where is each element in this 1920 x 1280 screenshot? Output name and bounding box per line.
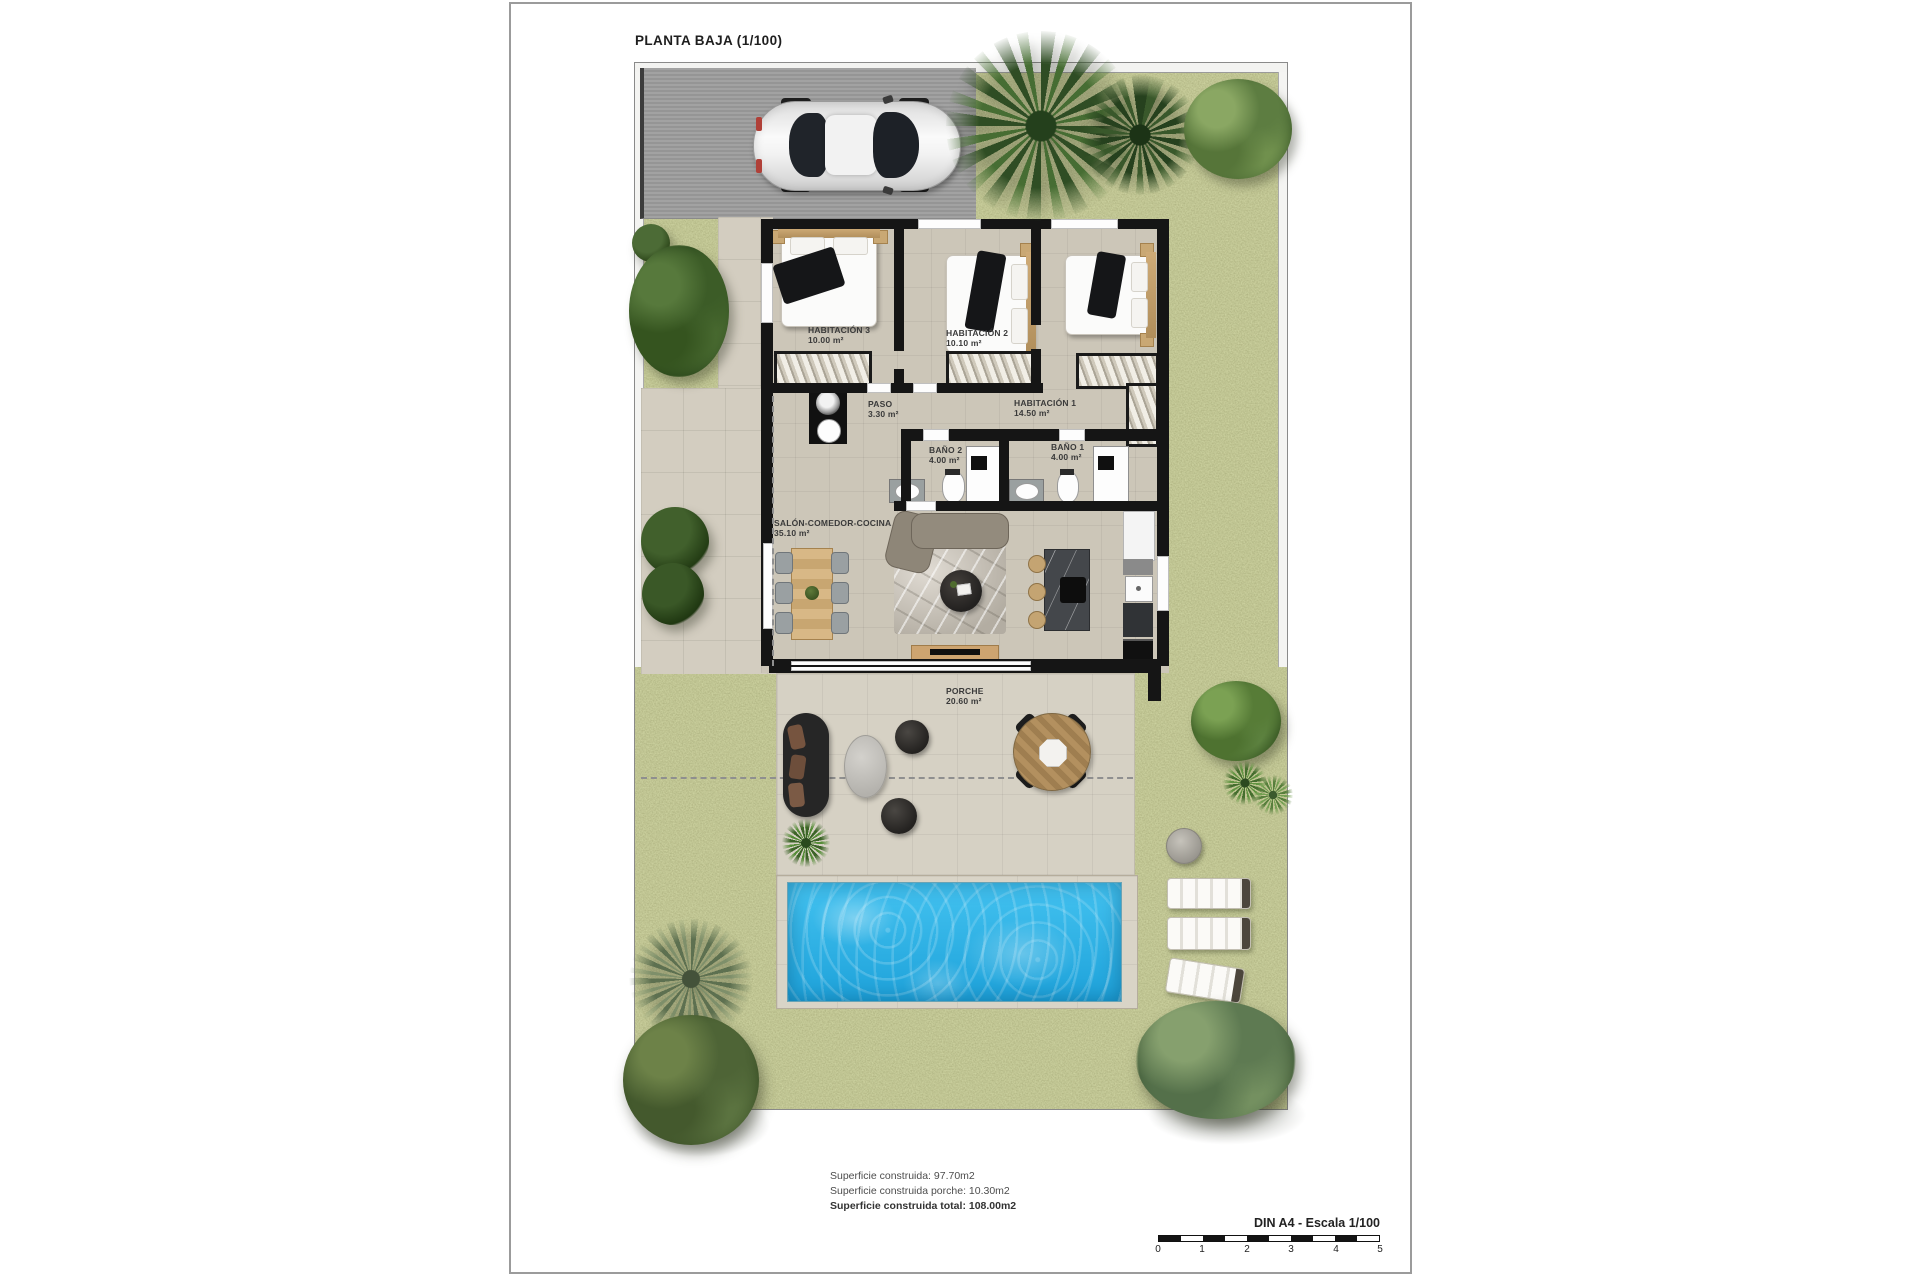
room-name: BAÑO 1 [1051, 442, 1084, 452]
dining-chair [775, 582, 793, 604]
washing-machine [816, 391, 840, 415]
utility-sink [817, 419, 841, 443]
fern-plant [1253, 775, 1293, 815]
room-label-salon: SALÓN-COMEDOR-COCINA 35.10 m² [774, 518, 891, 538]
pouf [895, 720, 929, 754]
summary-total-surface: Superficie construida total: 108.00m2 [830, 1199, 1016, 1214]
room-name: SALÓN-COMEDOR-COCINA [774, 518, 891, 528]
bar-stool [1028, 555, 1046, 573]
shower-tray [1093, 446, 1129, 505]
door-opening [867, 383, 891, 393]
sofa [911, 513, 1009, 549]
tree [1184, 79, 1292, 179]
scale-segment [1225, 1236, 1247, 1241]
pouf [881, 798, 917, 834]
wall-segment [1148, 661, 1161, 701]
dining-chair [831, 612, 849, 634]
scale-tick: 3 [1288, 1244, 1294, 1256]
tv-screen [930, 649, 980, 655]
pillow [833, 237, 869, 255]
room-label-bano-2: BAÑO 2 4.00 m² [929, 445, 962, 465]
scale-segment [1335, 1236, 1357, 1241]
room-name: HABITACIÓN 1 [1014, 398, 1076, 408]
room-area: 14.50 m² [1014, 408, 1076, 418]
room-name: HABITACIÓN 2 [946, 328, 1008, 338]
summary-porch-surface: Superficie construida porche: 10.30m2 [830, 1184, 1016, 1199]
wall-segment [901, 441, 911, 504]
bed-double [1065, 255, 1153, 335]
room-label-habitacion-2: HABITACIÓN 2 10.10 m² [946, 328, 1008, 348]
scale-segment [1291, 1236, 1313, 1241]
floor-plan-canvas: PLANTA BAJA (1/100) [0, 0, 1920, 1280]
toilet [1057, 471, 1079, 503]
car-taillight [756, 117, 762, 131]
scale-segment [1313, 1236, 1335, 1241]
dining-chair [775, 552, 793, 574]
door-opening [1059, 429, 1085, 441]
tree [1136, 1001, 1296, 1119]
sofa-cushion [788, 754, 806, 780]
scale-tick: 5 [1377, 1244, 1383, 1256]
outdoor-sofa [783, 713, 829, 817]
room-area: 4.00 m² [929, 455, 962, 465]
bed-throw [964, 250, 1006, 333]
grass-tuft [782, 819, 830, 867]
kitchen-counter-dark [1123, 603, 1153, 637]
scale-tick: 0 [1155, 1244, 1161, 1256]
bar-stool [1028, 583, 1046, 601]
house [761, 219, 1169, 673]
room-area: 10.10 m² [946, 338, 1008, 348]
bar-stool [1028, 611, 1046, 629]
perimeter-wall-right [1278, 72, 1287, 667]
pillow [1011, 308, 1027, 345]
sun-lounger [1167, 878, 1251, 909]
window-gap [1157, 556, 1169, 611]
tree [642, 563, 704, 625]
shower-column [1098, 456, 1114, 470]
room-label-porche: PORCHE 20.60 m² [946, 686, 984, 706]
wall-segment [1031, 229, 1041, 325]
room-label-habitacion-3: HABITACIÓN 3 10.00 m² [808, 325, 870, 345]
plan-title: PLANTA BAJA (1/100) [635, 33, 782, 49]
room-area: 3.30 m² [868, 409, 899, 419]
shower-column [971, 456, 987, 470]
sink-counter [1009, 479, 1044, 503]
car [753, 101, 959, 189]
swimming-pool [787, 882, 1122, 1002]
coffee-table [940, 570, 982, 612]
pine-palm-tree [1080, 75, 1200, 195]
sink-basin [1015, 483, 1039, 500]
kitchen-fridge [1123, 511, 1155, 561]
scale-tick: 1 [1199, 1244, 1205, 1256]
scale-bar-ticks: 0 1 2 3 4 5 [1158, 1244, 1380, 1258]
room-name: BAÑO 2 [929, 445, 962, 455]
door-opening [906, 501, 936, 511]
room-name: HABITACIÓN 3 [808, 325, 870, 335]
pillow [1011, 264, 1027, 301]
car-roof [825, 115, 877, 175]
toilet [942, 471, 965, 503]
wall-segment [999, 441, 1009, 504]
scale-segment [1203, 1236, 1225, 1241]
scale-tick: 2 [1244, 1244, 1250, 1256]
toilet-tank [945, 469, 960, 475]
shower-tray [966, 446, 1000, 505]
wall-segment [894, 229, 904, 351]
scale-segment [1269, 1236, 1291, 1241]
lounger-backrest [1242, 918, 1250, 949]
outdoor-side-table [844, 735, 887, 798]
room-name: PASO [868, 399, 899, 409]
window-gap [1051, 219, 1118, 229]
pine-tree [629, 245, 729, 377]
coffee-table-book [956, 583, 971, 596]
dining-chair [775, 612, 793, 634]
faucet [1136, 586, 1141, 591]
room-area: 35.10 m² [774, 528, 891, 538]
parasol [1039, 739, 1067, 767]
scale-segment [1181, 1236, 1203, 1241]
room-area: 4.00 m² [1051, 452, 1084, 462]
coffee-table-plant [950, 581, 957, 588]
shrub [1191, 681, 1281, 761]
cooktop [1060, 577, 1086, 603]
pillow [1131, 298, 1148, 328]
dining-chair [831, 582, 849, 604]
sliding-door-glass [791, 665, 1031, 667]
window-gap [761, 263, 773, 323]
surface-summary: Superficie construida: 97.70m2 Superfici… [830, 1169, 1016, 1215]
room-area: 20.60 m² [946, 696, 984, 706]
kitchen-sink [1125, 576, 1153, 602]
bed-throw [772, 246, 846, 305]
room-label-habitacion-1: HABITACIÓN 1 14.50 m² [1014, 398, 1076, 418]
room-area: 10.00 m² [808, 335, 870, 345]
dining-table [791, 548, 833, 640]
summary-built-surface: Superficie construida: 97.70m2 [830, 1169, 1016, 1184]
lounger-backrest [1242, 879, 1250, 908]
car-rear-window [789, 113, 829, 177]
stone-side-table [1166, 828, 1202, 864]
toilet-tank [1060, 469, 1074, 475]
scale-bar-graphic [1158, 1235, 1380, 1242]
car-taillight [756, 159, 762, 173]
laundry-unit [809, 386, 847, 444]
outdoor-dining-table [1013, 713, 1091, 791]
scale-segment [1159, 1236, 1181, 1241]
scale-segment [1357, 1236, 1379, 1241]
kitchen-counter [1123, 559, 1153, 575]
room-label-bano-1: BAÑO 1 4.00 m² [1051, 442, 1084, 462]
table-plant [805, 586, 819, 600]
sofa-cushion [788, 782, 805, 807]
sofa-cushion [787, 724, 807, 751]
door-opening [923, 429, 949, 441]
kitchen-island [1044, 549, 1090, 631]
door-opening [913, 383, 937, 393]
room-label-paso: PASO 3.30 m² [868, 399, 899, 419]
pillow [1131, 262, 1148, 292]
scale-segment [1247, 1236, 1269, 1241]
dining-chair [831, 552, 849, 574]
bed-throw [1086, 251, 1126, 319]
room-name: PORCHE [946, 686, 984, 696]
window-gap [918, 219, 981, 229]
plot-garden: HABITACIÓN 3 10.00 m² HABITACIÓN 2 10.10… [634, 62, 1288, 1110]
scale-bar: DIN A4 - Escala 1/100 0 1 2 3 4 5 [1158, 1216, 1380, 1258]
scale-bar-label: DIN A4 - Escala 1/100 [1158, 1216, 1380, 1231]
bed-double [781, 231, 877, 327]
sun-lounger [1167, 917, 1251, 950]
scale-tick: 4 [1333, 1244, 1339, 1256]
tree [623, 1015, 759, 1145]
